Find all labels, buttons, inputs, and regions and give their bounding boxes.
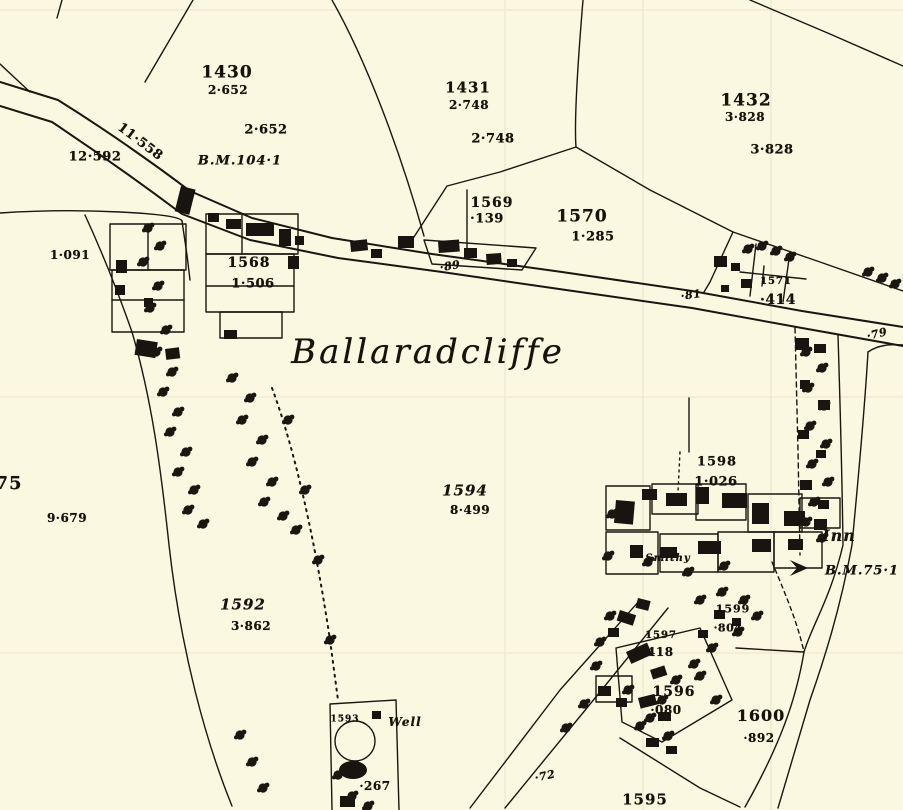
road-main [0,82,903,346]
map-sheet: 14302·6522·65212·59211·558B.M.104·114312… [0,0,903,810]
boundaries-1600 [620,562,804,807]
track-left [0,211,182,221]
map-linework [0,0,903,810]
lane-72 [470,600,668,808]
well-enclosure [330,700,399,810]
building-outlines [110,214,840,742]
lane-left [85,215,232,806]
buildings [115,186,830,807]
scan-fold-lines [0,0,903,810]
